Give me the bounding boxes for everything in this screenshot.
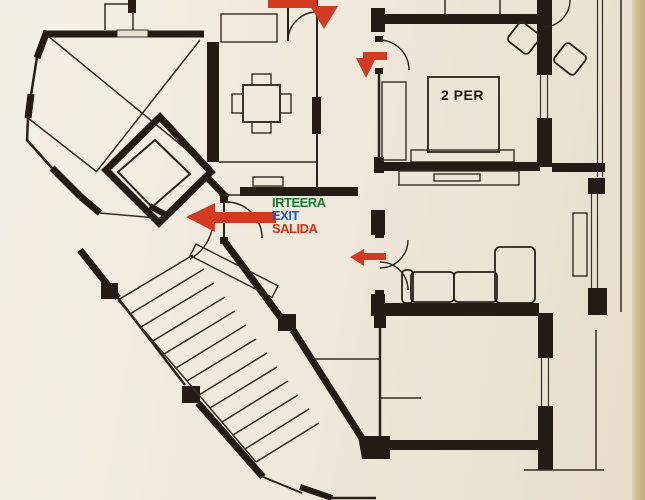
terrace-top-window: [117, 30, 148, 37]
lower-room: [312, 313, 604, 470]
terrace-bottom-edge: [28, 118, 97, 172]
kitchen-counter: [221, 14, 277, 42]
top-closet: [105, 0, 136, 30]
chair-south: [252, 122, 271, 133]
main-exit-arrow-icon: [186, 203, 276, 232]
couch-chaise: [495, 247, 535, 303]
terrace: [27, 0, 209, 197]
double-door-arc-bottom: [380, 262, 408, 290]
exit-sign-salida: SALIDA: [272, 221, 319, 236]
dining-left-wall: [207, 42, 219, 162]
chair-north: [252, 74, 271, 85]
floor-plan-svg: 2 PER: [0, 0, 645, 500]
bedroom-bottom-wall: [379, 162, 540, 171]
floor-plan-photo: 2 PER: [0, 0, 645, 500]
staircase: [80, 242, 376, 498]
terrace-window-left: [31, 57, 37, 95]
bedroom-door-arrow-icon: [356, 52, 387, 78]
exit-sign: IRTEERA EXIT SALIDA: [272, 195, 327, 236]
dining-table: [232, 74, 291, 133]
tilted-chair-1: [506, 21, 541, 56]
radiator: [573, 213, 587, 276]
tilted-chair-2: [552, 42, 587, 77]
sideboard: [399, 171, 519, 185]
corridor-arrow-top-icon: [268, 0, 338, 29]
living-room: [371, 171, 587, 316]
bedroom-label: 2 PER: [441, 87, 484, 103]
couch: [402, 247, 535, 306]
wardrobe: [382, 82, 406, 160]
dining-door-arc: [288, 12, 317, 41]
window-sill: [253, 177, 283, 186]
living-bottom-wall: [372, 303, 539, 316]
chair-west: [232, 94, 243, 113]
bedroom: 2 PER: [371, 0, 588, 173]
bedroom-top-wall: [383, 14, 540, 24]
dining-room: [207, 0, 358, 196]
hall-door-arrow-icon: [350, 249, 386, 266]
chair-east: [280, 94, 291, 113]
lower-bottom-wall: [388, 440, 539, 450]
